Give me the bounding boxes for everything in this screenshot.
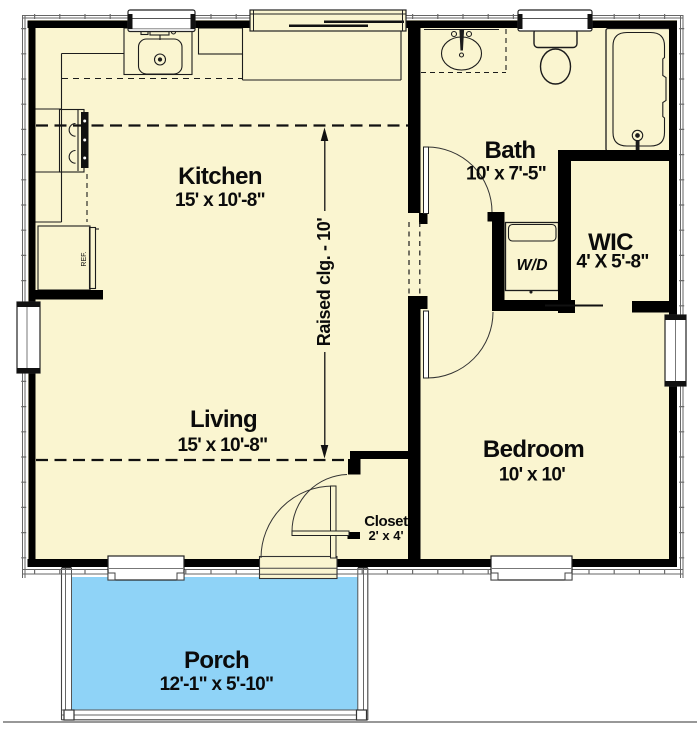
svg-text:10' x 10': 10' x 10': [499, 465, 565, 486]
svg-text:REF.: REF.: [81, 251, 88, 266]
svg-text:4' X 5'-8": 4' X 5'-8": [576, 252, 648, 273]
svg-text:15' x 10'-8": 15' x 10'-8": [178, 435, 268, 456]
svg-text:W/D: W/D: [516, 257, 548, 274]
svg-text:15' x 10'-8": 15' x 10'-8": [175, 190, 265, 211]
svg-text:Living: Living: [190, 406, 257, 433]
svg-text:Raised clg. - 10': Raised clg. - 10': [314, 218, 334, 347]
svg-text:Bath: Bath: [485, 137, 536, 164]
svg-text:2' x 4': 2' x 4': [368, 528, 403, 543]
svg-text:Kitchen: Kitchen: [178, 163, 262, 190]
svg-text:Bedroom: Bedroom: [483, 436, 584, 463]
svg-text:10' x 7'-5": 10' x 7'-5": [466, 164, 546, 185]
svg-text:12'-1" x 5'-10": 12'-1" x 5'-10": [160, 674, 274, 695]
svg-text:Porch: Porch: [184, 647, 249, 674]
